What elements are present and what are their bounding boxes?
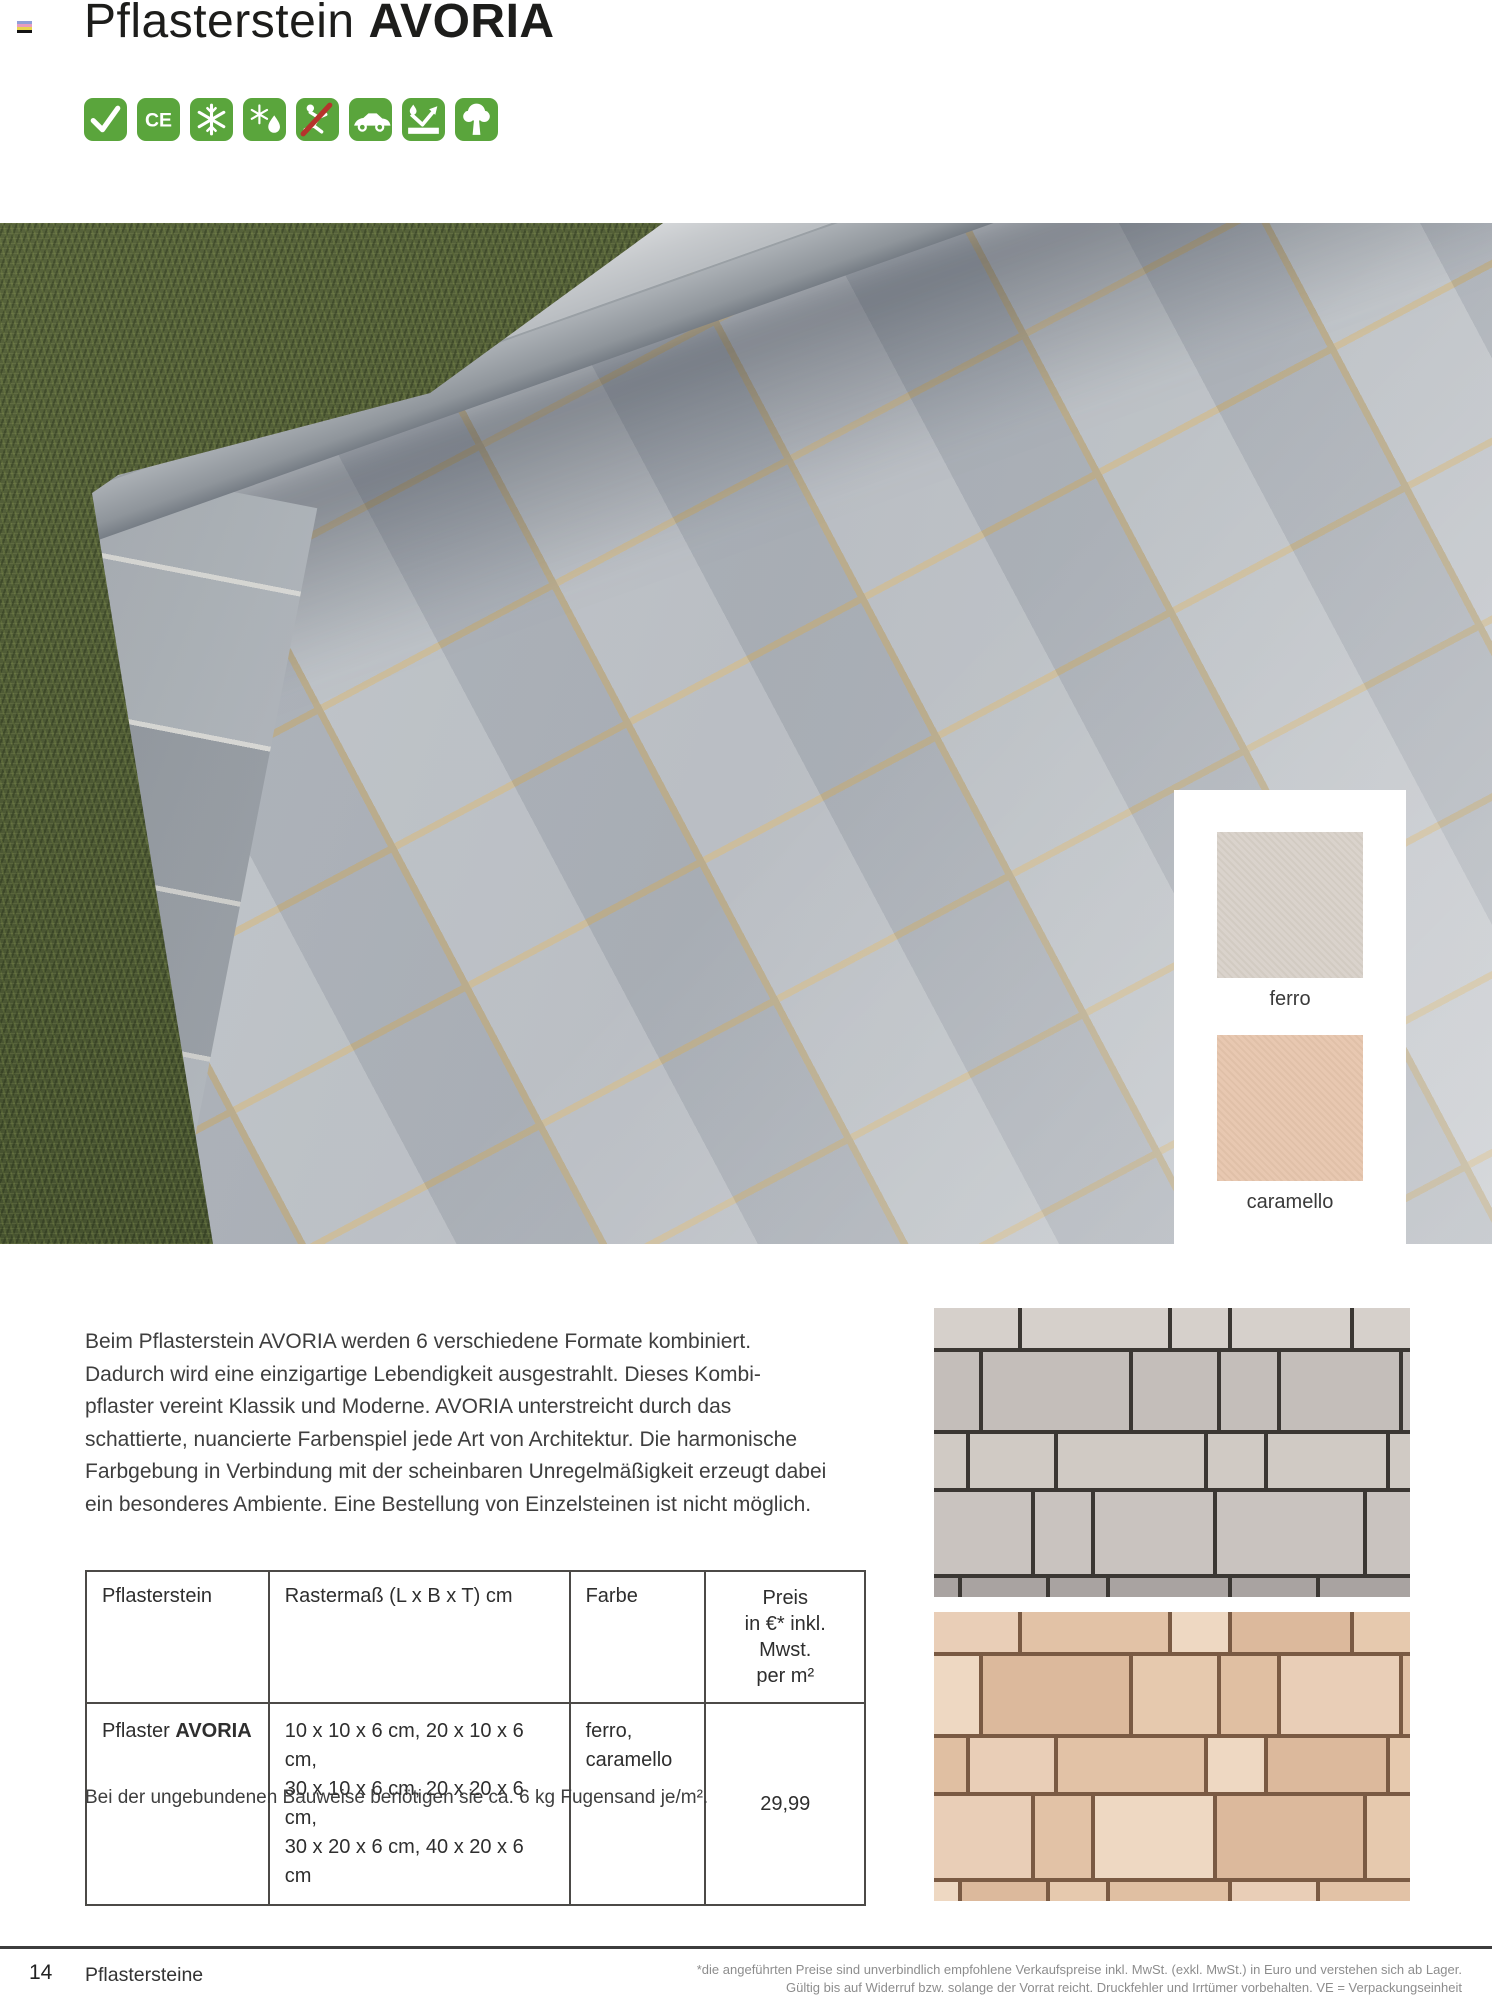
approved-check-icon — [84, 98, 127, 141]
caramello-pattern-figure — [934, 1612, 1410, 1901]
eco-tree-icon — [455, 98, 498, 141]
cell-price: 29,99 — [705, 1703, 865, 1905]
header-product: Pflasterstein — [86, 1571, 269, 1703]
spec-table: Pflasterstein Rastermaß (L x B x T) cm F… — [85, 1570, 866, 1906]
page-title: Pflasterstein AVORIA — [84, 0, 555, 52]
frost-resistant-icon — [190, 98, 233, 141]
description-line: ein besonderes Ambiente. Eine Bestellung… — [85, 1489, 905, 1522]
svg-text:CE: CE — [145, 110, 172, 132]
description-line: pflaster vereint Klassik und Moderne. AV… — [85, 1391, 905, 1424]
ce-marking-icon: CE — [137, 98, 180, 141]
swatch-caramello — [1217, 1035, 1363, 1181]
footer-rule — [0, 1946, 1492, 1949]
installation-note: Bei der ungebundenen Bauweise benötigen … — [85, 1787, 708, 1809]
catalog-page: Pflasterstein AVORIA CE — [0, 0, 1492, 2000]
product-description: Beim Pflasterstein AVORIA werden 6 versc… — [85, 1326, 905, 1522]
description-line: Beim Pflasterstein AVORIA werden 6 versc… — [85, 1326, 905, 1359]
swatch-caramello-label: caramello — [1174, 1191, 1406, 1214]
print-registration-icon — [17, 21, 32, 33]
header-size: Rastermaß (L x B x T) cm — [269, 1571, 570, 1703]
ferro-pattern-figure — [934, 1308, 1410, 1597]
header-price: Preis in €* inkl. Mwst. per m² — [705, 1571, 865, 1703]
feature-icon-row: CE — [84, 98, 498, 141]
description-line: Dadurch wird eine einzigartige Lebendigk… — [85, 1359, 905, 1392]
color-swatch-box: ferro caramello — [1174, 790, 1406, 1244]
surface-protection-icon — [402, 98, 445, 141]
legal-text: *die angeführten Preise sind unverbindli… — [697, 1961, 1462, 1996]
description-line: schattierte, nuancierte Farbenspiel jede… — [85, 1424, 905, 1457]
section-label: Pflastersteine — [85, 1964, 203, 1987]
spec-table-header-row: Pflasterstein Rastermaß (L x B x T) cm F… — [86, 1571, 865, 1703]
deicing-salt-resistant-icon — [243, 98, 286, 141]
slip-resistant-icon — [296, 98, 339, 141]
description-line: Farbgebung in Verbindung mit der scheinb… — [85, 1456, 905, 1489]
hero-photo: ferro caramello — [0, 223, 1492, 1244]
page-number: 14 — [29, 1961, 52, 1985]
swatch-ferro-label: ferro — [1174, 988, 1406, 1011]
page-title-product-name: AVORIA — [368, 0, 554, 48]
page-title-regular: Pflasterstein — [84, 0, 368, 48]
swatch-ferro — [1217, 832, 1363, 978]
header-color: Farbe — [570, 1571, 706, 1703]
car-loadable-icon — [349, 98, 392, 141]
